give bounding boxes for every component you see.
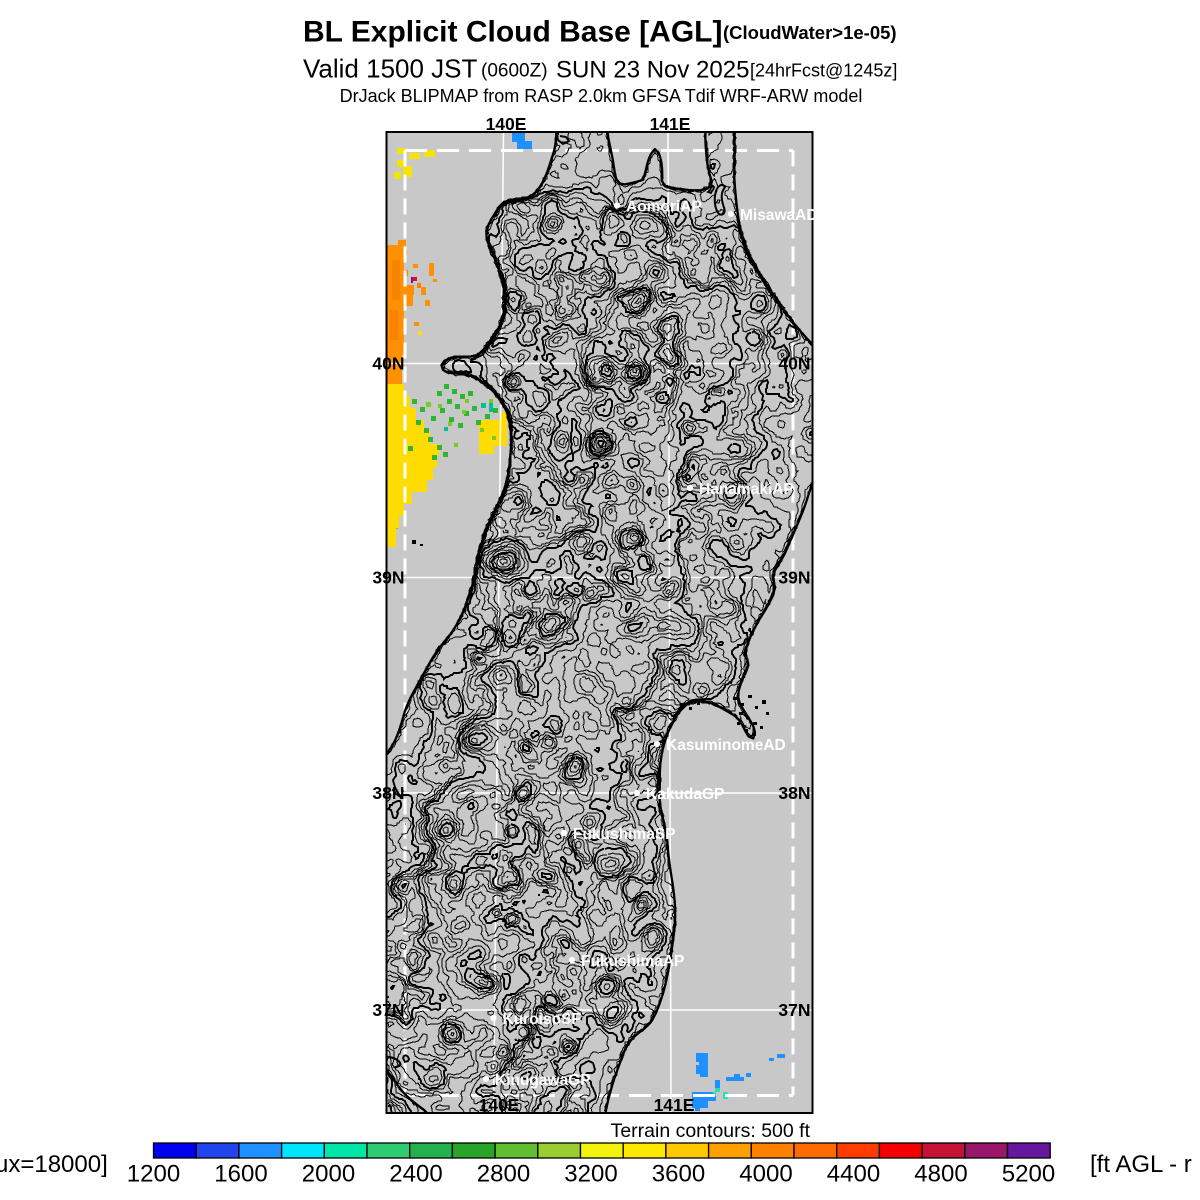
svg-text:3200: 3200	[564, 1161, 617, 1188]
svg-text:140E: 140E	[486, 114, 527, 134]
svg-text:4400: 4400	[827, 1161, 880, 1188]
svg-text:Valid 1500 JST: Valid 1500 JST	[303, 54, 478, 84]
svg-text:KakudaGP: KakudaGP	[646, 786, 724, 803]
svg-text:37N: 37N	[778, 1000, 810, 1020]
svg-text:141E: 141E	[654, 1095, 695, 1115]
svg-text:2800: 2800	[477, 1161, 530, 1188]
svg-text:4000: 4000	[739, 1161, 792, 1188]
svg-text:ux=18000]: ux=18000]	[0, 1151, 108, 1178]
svg-text:KuroisoSF: KuroisoSF	[503, 1011, 581, 1028]
svg-text:38N: 38N	[372, 783, 404, 803]
svg-text:[24hrFcst@1245z]: [24hrFcst@1245z]	[750, 61, 897, 81]
svg-text:1200: 1200	[127, 1161, 180, 1188]
svg-text:SUN 23 Nov 2025: SUN 23 Nov 2025	[556, 57, 749, 84]
svg-text:KasuminomeAD: KasuminomeAD	[666, 737, 786, 754]
svg-text:[ft AGL - r: [ft AGL - r	[1090, 1151, 1192, 1178]
svg-text:37N: 37N	[372, 1000, 404, 1020]
svg-text:(0600Z): (0600Z)	[481, 61, 548, 82]
svg-text:38N: 38N	[778, 783, 810, 803]
svg-text:40N: 40N	[372, 354, 404, 374]
svg-text:BL Explicit Cloud Base [AGL]: BL Explicit Cloud Base [AGL]	[303, 16, 723, 49]
svg-text:Terrain contours: 500 ft: Terrain contours: 500 ft	[611, 1120, 811, 1142]
svg-text:5200: 5200	[1002, 1161, 1055, 1188]
svg-text:2000: 2000	[302, 1161, 355, 1188]
svg-text:140E: 140E	[479, 1095, 520, 1115]
svg-text:FukushimaSP: FukushimaSP	[573, 826, 676, 843]
svg-text:(CloudWater>1e-05): (CloudWater>1e-05)	[723, 22, 897, 43]
svg-text:39N: 39N	[372, 568, 404, 588]
svg-text:39N: 39N	[778, 568, 810, 588]
svg-text:FukushimaAP: FukushimaAP	[581, 953, 684, 970]
svg-text:141E: 141E	[650, 114, 691, 134]
svg-text:HanamakiAP: HanamakiAP	[699, 481, 794, 498]
svg-text:DrJack BLIPMAP from RASP 2.0km: DrJack BLIPMAP from RASP 2.0km GFSA Tdif…	[340, 86, 863, 106]
svg-text:KinugawaGP: KinugawaGP	[495, 1072, 591, 1089]
svg-text:3600: 3600	[652, 1161, 705, 1188]
svg-text:1600: 1600	[214, 1161, 267, 1188]
svg-text:AomoriAP: AomoriAP	[626, 199, 702, 216]
svg-text:4800: 4800	[914, 1161, 967, 1188]
svg-text:2400: 2400	[389, 1161, 442, 1188]
svg-text:MisawaAD: MisawaAD	[740, 207, 818, 224]
svg-text:40N: 40N	[778, 354, 810, 374]
